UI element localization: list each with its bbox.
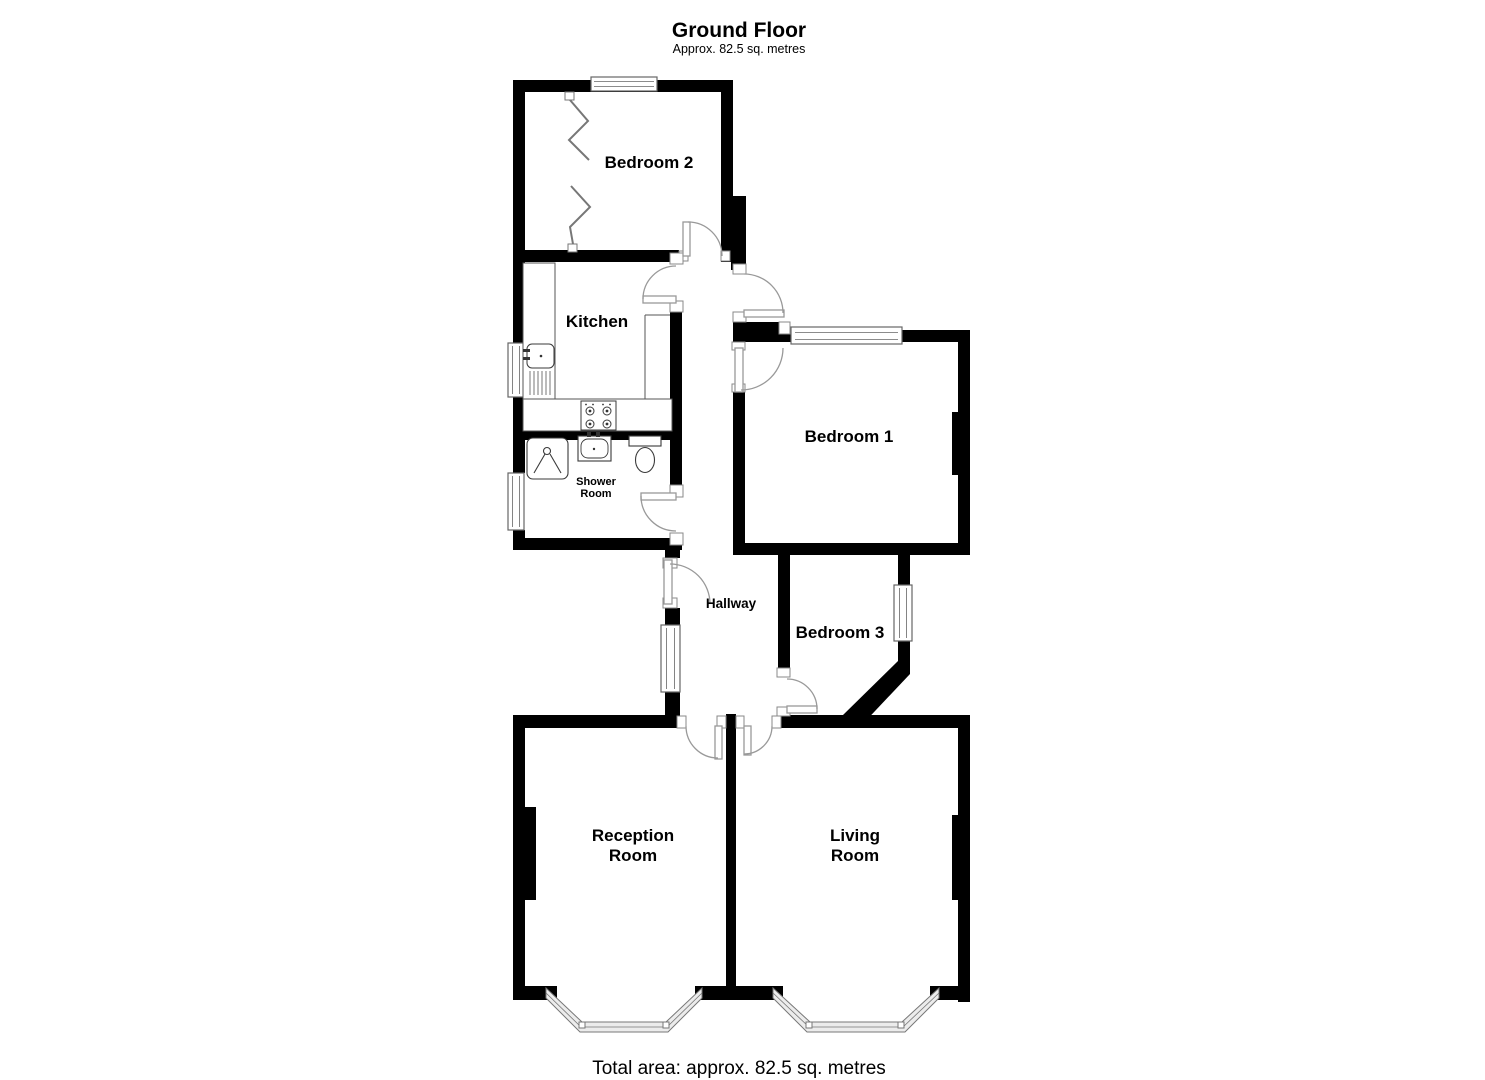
living-bay-window [773,988,939,1032]
toilet-icon [629,436,661,473]
bedroom2-door [683,222,722,256]
label-living-line2: Room [831,846,879,865]
page-title: Ground Floor [672,19,806,42]
hallway-side-door [664,560,710,604]
label-hallway: Hallway [706,596,757,611]
kitchen-window [508,343,524,397]
label-bedroom3: Bedroom 3 [796,623,885,642]
label-bedroom1: Bedroom 1 [805,427,894,446]
reception-door [686,726,722,759]
label-shower-line1: Shower [576,476,616,488]
kitchen-sink-icon [523,344,554,368]
bedroom3-window [894,585,912,641]
floorplan-page: Ground Floor Approx. 82.5 sq. metres Bed… [0,0,1485,1080]
kitchen-fixtures [523,263,672,431]
shower-room-window [508,473,524,530]
shower-room-door [641,493,676,531]
kitchen-door [643,266,676,303]
reception-bay-window [546,988,702,1032]
page-subtitle: Approx. 82.5 sq. metres [673,42,806,56]
hallway-window [661,625,680,692]
hob-icon [581,401,616,430]
label-living-line1: Living [830,826,880,845]
vestibule-door [744,274,784,317]
total-area-text: Total area: approx. 82.5 sq. metres [592,1058,886,1079]
label-kitchen: Kitchen [566,312,628,331]
wash-basin-icon [578,432,611,461]
bedroom1-door [735,348,783,392]
living-room-door [744,726,772,755]
shower-fixtures [527,432,661,479]
label-reception-line1: Reception [592,826,674,845]
bedroom1-window [791,327,902,344]
floorplan-drawing: Ground Floor Approx. 82.5 sq. metres Bed… [0,0,1485,1080]
label-shower-line2: Room [580,488,611,500]
walls [513,80,970,1002]
label-reception-line2: Room [609,846,657,865]
shower-tray-icon [527,438,568,479]
zigzag-marks [565,92,590,252]
label-bedroom2: Bedroom 2 [605,153,694,172]
bedroom2-window [591,77,657,91]
bedroom3-door [787,679,817,713]
